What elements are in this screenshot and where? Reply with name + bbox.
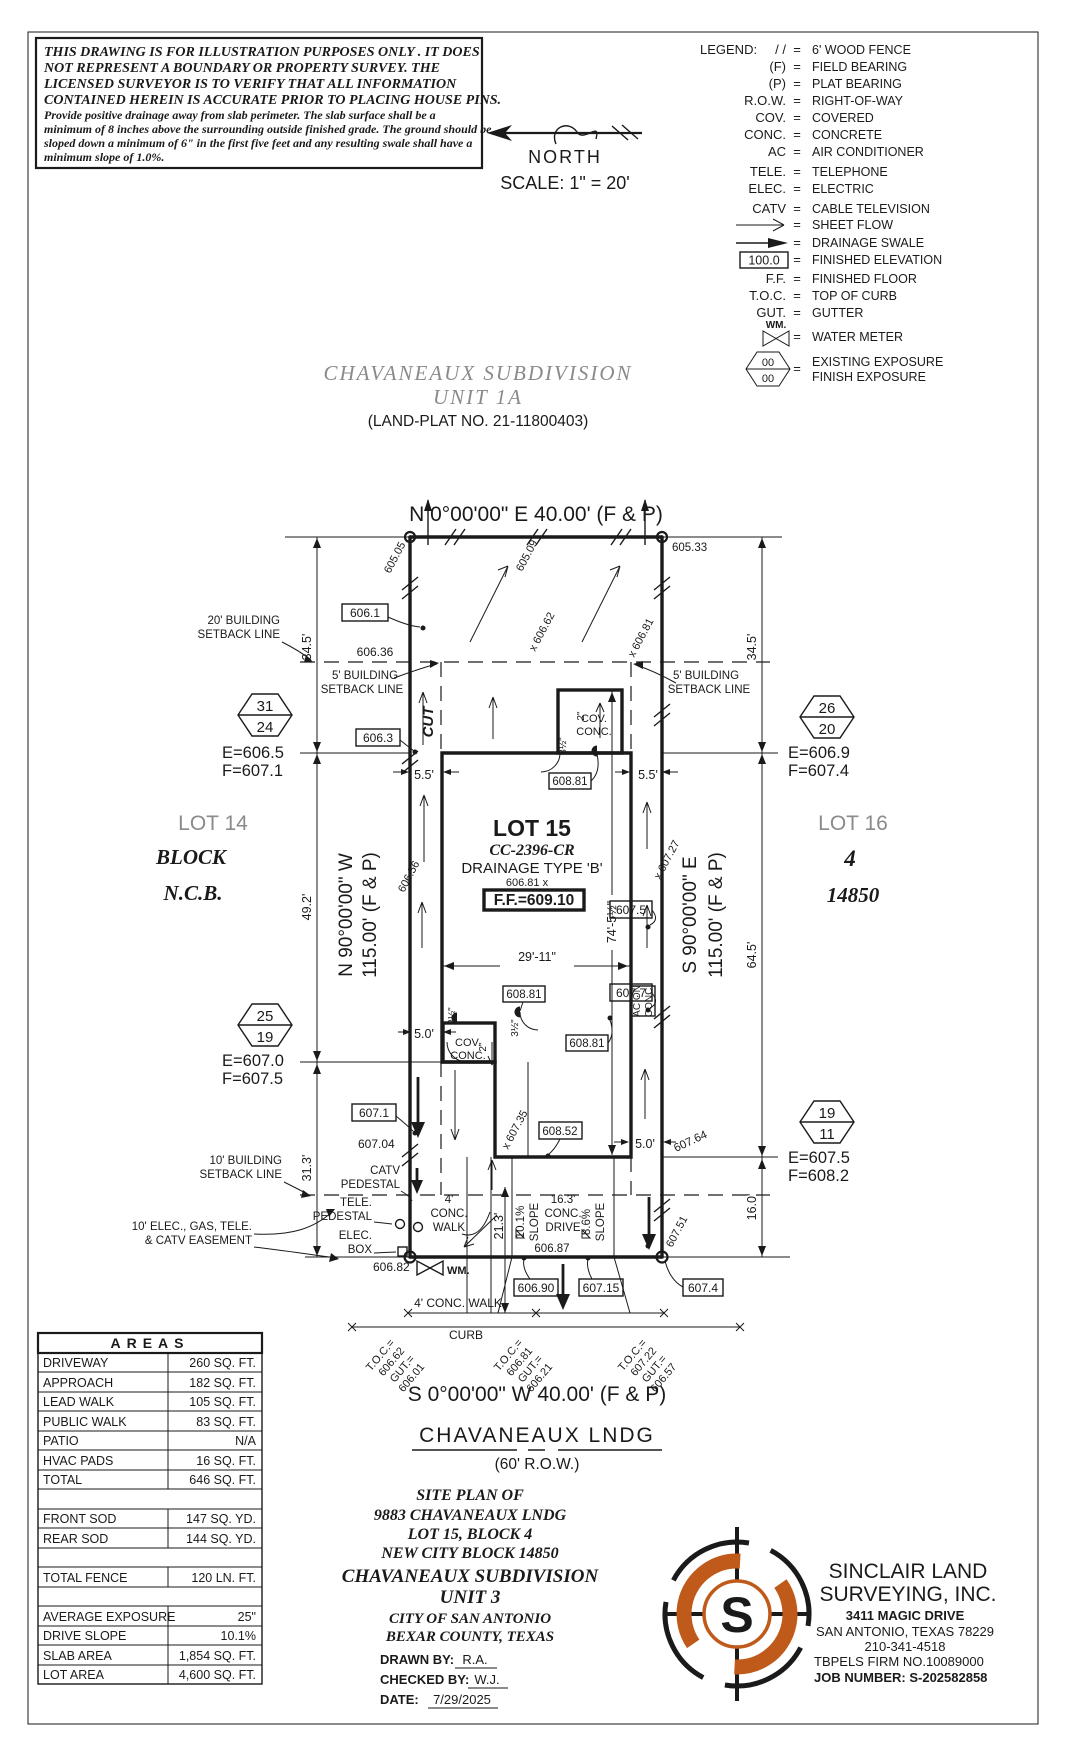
table-value: 120 LN. FT. xyxy=(191,1571,256,1585)
lead-walk-label: CONC. xyxy=(430,1208,467,1220)
legend-eq: = xyxy=(793,235,801,250)
water-meter-icon xyxy=(763,331,789,346)
table-label: HVAC PADS xyxy=(43,1454,113,1468)
titleblock-line: CITY OF SAN ANTONIO xyxy=(389,1611,551,1627)
table-label: FRONT SOD xyxy=(43,1512,116,1526)
legend-eq: = xyxy=(793,252,801,267)
legend-desc: GUTTER xyxy=(812,306,863,320)
legend-desc: 6' WOOD FENCE xyxy=(812,43,911,57)
marker-existing: 25 xyxy=(257,1008,274,1025)
marker-existing: 26 xyxy=(819,700,836,717)
table-value: 25" xyxy=(238,1610,256,1624)
disclaimer-line: NOT REPRESENT A BOUNDARY OR PROPERTY SUR… xyxy=(43,61,440,76)
disclaimer-line: CONTAINED HEREIN IS ACCURATE PRIOR TO PL… xyxy=(44,93,501,108)
lot-15-label: LOT 15 xyxy=(493,815,571,841)
conc-drive-label: DRIVE xyxy=(545,1222,580,1234)
disclaimer-note: THIS DRAWING IS FOR ILLUSTRATION PURPOSE… xyxy=(36,38,501,168)
easement-label: 10' ELEC., GAS, TELE. xyxy=(132,1221,252,1233)
table-label: PATIO xyxy=(43,1434,79,1448)
legend-desc: EXISTING EXPOSURE xyxy=(812,355,943,369)
dim-3half-front: 3½" xyxy=(558,737,569,755)
elev-607-1: 607.1 xyxy=(359,1106,389,1120)
marker-e: E=606.5 xyxy=(222,744,284,762)
drainage-swale-icon xyxy=(736,238,788,248)
setback-20-label: SETBACK LINE xyxy=(198,629,281,641)
legend-sym: R.O.W. xyxy=(744,93,786,108)
elev-606-1: 606.1 xyxy=(350,606,380,620)
legend-eq: = xyxy=(793,144,801,159)
legend: LEGEND: / / = 6' WOOD FENCE (F) = FIELD … xyxy=(700,42,943,386)
spot-607-64: 607.64 xyxy=(672,1129,709,1155)
exposure-existing: 00 xyxy=(762,357,774,369)
interior-dims xyxy=(442,690,630,1155)
legend-sym: CONC. xyxy=(744,127,786,142)
legend-desc: FIELD BEARING xyxy=(812,60,907,74)
tele-pedestal-label: PEDESTAL xyxy=(313,1211,373,1223)
elev-608-52: 608.52 xyxy=(542,1126,577,1138)
table-value: 260 SQ. FT. xyxy=(189,1356,256,1370)
areas-title: AREAS xyxy=(110,1335,189,1351)
legend-desc: CABLE TELEVISION xyxy=(812,202,930,216)
marker-finish: 24 xyxy=(257,719,274,736)
legend-title: LEGEND: xyxy=(700,42,757,57)
dim-21-3: 21.3' xyxy=(492,1213,506,1240)
house-outline xyxy=(442,690,655,1157)
drive-slope-left: 10.1% xyxy=(515,1206,527,1239)
table-label: DRIVE SLOPE xyxy=(43,1629,126,1643)
conc-drive-label: CONC. xyxy=(544,1208,581,1220)
table-label: TOTAL xyxy=(43,1473,82,1487)
legend-sym: (F) xyxy=(769,59,786,74)
north-arrow-icon xyxy=(487,125,642,144)
legend-eq: = xyxy=(793,164,801,179)
legend-eq: = xyxy=(793,329,801,344)
table-value: 147 SQ. YD. xyxy=(186,1512,256,1526)
elec-box-label: BOX xyxy=(348,1244,373,1256)
marker-existing: 31 xyxy=(257,698,274,715)
legend-sym: 100.0 xyxy=(748,254,779,268)
marker-f: F=607.4 xyxy=(788,762,849,780)
marker-f: F=607.1 xyxy=(222,762,283,780)
spot-607-35: x 607.35 xyxy=(500,1109,530,1152)
scale-label: SCALE: 1" = 20' xyxy=(500,173,629,193)
legend-eq: = xyxy=(793,76,801,91)
legend-desc: CONCRETE xyxy=(812,128,882,142)
checked-by-label: CHECKED BY: xyxy=(380,1672,469,1687)
setback-5-right-label: 5' BUILDING xyxy=(673,670,739,682)
drawn-by-label: DRAWN BY: xyxy=(380,1652,454,1667)
legend-eq: = xyxy=(793,42,801,57)
subdivision-unit: UNIT 1A xyxy=(433,385,523,409)
street-row: (60' R.O.W.) xyxy=(495,1456,580,1473)
bearing-east-1: S 90°00'00" E xyxy=(680,856,701,973)
legend-desc: FINISHED FLOOR xyxy=(812,272,917,286)
plat-number: (LAND-PLAT NO. 21-11800403) xyxy=(368,413,589,430)
legend-eq: = xyxy=(793,127,801,142)
table-label: AVERAGE EXPOSURE xyxy=(43,1610,175,1624)
dim-49-2: 49.2' xyxy=(300,894,314,921)
firm-address: 3411 MAGIC DRIVE xyxy=(846,1608,965,1623)
table-value: 105 SQ. FT. xyxy=(189,1395,256,1409)
conc-drive-label: 16.3' xyxy=(551,1194,576,1206)
table-label: DRIVEWAY xyxy=(43,1356,109,1370)
firm-info: SINCLAIR LAND SURVEYING, INC. 3411 MAGIC… xyxy=(814,1560,996,1685)
spot-elev-60681: 606.81 x xyxy=(506,877,549,889)
legend-sym: (P) xyxy=(769,76,786,91)
bearing-west-2: 115.00' (F & P) xyxy=(360,852,381,978)
legend-eq: = xyxy=(793,93,801,108)
dim-3half-rear1: 3½" xyxy=(447,1007,458,1025)
areas-table: AREAS DRIVEWAY 260 SQ. FT. APPROACH 182 … xyxy=(38,1333,262,1684)
date-value: 7/29/2025 xyxy=(433,1692,491,1707)
legend-desc: FINISH EXPOSURE xyxy=(812,370,926,384)
titleblock-line: UNIT 3 xyxy=(440,1587,501,1608)
drive-slope-right: SLOPE xyxy=(595,1202,607,1241)
table-value: N/A xyxy=(235,1434,257,1448)
firm-tbpels: TBPELS FIRM NO.10089000 xyxy=(814,1654,984,1669)
titleblock-line: LOT 15, BLOCK 4 xyxy=(407,1526,532,1543)
lot-14-label: LOT 14 xyxy=(178,812,248,835)
table-label: PUBLIC WALK xyxy=(43,1415,127,1429)
legend-desc: SHEET FLOW xyxy=(812,218,893,232)
table-value: 83 SQ. FT. xyxy=(196,1415,256,1429)
legend-desc: TELEPHONE xyxy=(812,165,888,179)
legend-sym: ELEC. xyxy=(748,181,786,196)
lot-16-label: LOT 16 xyxy=(818,812,888,835)
legend-eq: = xyxy=(793,288,801,303)
table-value: 16 SQ. FT. xyxy=(196,1454,256,1468)
spot-606-62: x 606.62 xyxy=(527,611,557,654)
easement-label: & CATV EASEMENT xyxy=(145,1235,252,1247)
legend-desc: RIGHT-OF-WAY xyxy=(812,94,904,108)
north-label: NORTH xyxy=(528,147,602,167)
marker-finish: 11 xyxy=(819,1126,835,1143)
table-value: 144 SQ. YD. xyxy=(186,1532,256,1546)
elev-608-81-c: 608.81 xyxy=(569,1038,604,1050)
spot-606-81: x 606.81 xyxy=(626,617,656,660)
table-value: 4,600 SQ. FT. xyxy=(179,1668,256,1682)
dim-31-3: 31.3' xyxy=(300,1155,314,1182)
marker-existing: 19 xyxy=(819,1105,836,1122)
legend-desc: TOP OF CURB xyxy=(812,289,897,303)
table-value: 646 SQ. FT. xyxy=(189,1473,256,1487)
marker-f: F=607.5 xyxy=(222,1070,283,1088)
elev-607-5: 607.5 xyxy=(616,903,646,917)
table-value: 1,854 SQ. FT. xyxy=(179,1649,256,1663)
table-label: LOT AREA xyxy=(43,1668,105,1682)
setback-5-left-label: 5' BUILDING xyxy=(332,670,398,682)
leader xyxy=(374,1252,396,1253)
block-label: BLOCK xyxy=(155,845,228,869)
titleblock-line: CHAVANEAUX SUBDIVISION xyxy=(342,1566,600,1587)
table-label: LEAD WALK xyxy=(43,1395,115,1409)
dim-2in-front: 2" xyxy=(576,711,587,721)
disclaimer-line: THIS DRAWING IS FOR ILLUSTRATION PURPOSE… xyxy=(44,45,480,60)
firm-address: SAN ANTONIO, TEXAS 78229 xyxy=(816,1624,994,1639)
spot-607-04: 607.04 xyxy=(358,1137,395,1151)
legend-eq: = xyxy=(793,305,801,320)
table-value: 182 SQ. FT. xyxy=(189,1376,256,1390)
cov-conc-front: CONC. xyxy=(576,726,611,738)
legend-sym: F.F. xyxy=(766,271,786,286)
titleblock-line: SITE PLAN OF xyxy=(416,1487,524,1504)
setback-5-left-label: SETBACK LINE xyxy=(321,684,404,696)
setback-10-label: SETBACK LINE xyxy=(200,1169,283,1181)
drawn-by-value: R.A. xyxy=(462,1652,487,1667)
site-plan-sheet: THIS DRAWING IS FOR ILLUSTRATION PURPOSE… xyxy=(0,0,1066,1754)
table-label: TOTAL FENCE xyxy=(43,1571,128,1585)
legend-sym: WM. xyxy=(766,320,787,331)
legend-sym: AC xyxy=(768,144,786,159)
ncb-number: 14850 xyxy=(827,883,880,907)
lead-walk-label: 4' xyxy=(445,1194,454,1206)
firm-name: SINCLAIR LAND xyxy=(829,1560,988,1583)
legend-eq: = xyxy=(793,217,801,232)
sinclair-logo-icon: S xyxy=(640,1517,835,1712)
dim-29-11: 29'-11" xyxy=(518,950,556,964)
catv-pedestal-label: PEDESTAL xyxy=(341,1179,401,1191)
setback-5-right-label: SETBACK LINE xyxy=(668,684,751,696)
drainage-type: DRAINAGE TYPE 'B' xyxy=(461,860,602,877)
lead-walk-label: WALK xyxy=(433,1222,465,1234)
elev-607-15: 607.15 xyxy=(583,1281,620,1295)
titleblock-line: NEW CITY BLOCK 14850 xyxy=(380,1545,558,1562)
legend-eq: = xyxy=(793,271,801,286)
legend-eq: = xyxy=(793,110,801,125)
dim-2in-rear: 2" xyxy=(478,1042,489,1052)
lot-cc-number: CC-2396-CR xyxy=(489,842,575,859)
titleblock-line: BEXAR COUNTY, TEXAS xyxy=(385,1629,554,1645)
elev-606-90: 606.90 xyxy=(518,1281,555,1295)
legend-desc: PLAT BEARING xyxy=(812,77,902,91)
marker-e: E=606.9 xyxy=(788,744,850,762)
legend-sym: GUT. xyxy=(756,305,786,320)
elev-607-7: 607.7 xyxy=(616,986,646,1000)
legend-desc: AIR CONDITIONER xyxy=(812,145,924,159)
firm-phone: 210-341-4518 xyxy=(865,1639,946,1654)
marker-e: E=607.5 xyxy=(788,1149,850,1167)
legend-eq: = xyxy=(793,59,801,74)
legend-sym: COV. xyxy=(755,110,786,125)
setback-20-label: 20' BUILDING xyxy=(208,615,281,627)
dim-3half-rear2: 3½" xyxy=(510,1019,521,1037)
bearing-east-2: 115.00' (F & P) xyxy=(706,852,727,978)
table-value: 10.1% xyxy=(221,1629,256,1643)
drive-slope-left: SLOPE xyxy=(529,1202,541,1241)
legend-sym: / / xyxy=(775,42,786,57)
water-meter-symbol xyxy=(417,1261,443,1275)
legend-eq: = xyxy=(793,201,801,216)
legend-desc: ELECTRIC xyxy=(812,182,874,196)
dim-64-5: 64.5' xyxy=(745,942,759,969)
spot-606-36: 606.36 xyxy=(357,645,394,659)
tele-pedestal-icon xyxy=(396,1220,405,1229)
catv-pedestal-label: CATV xyxy=(370,1165,400,1177)
exposure-finish: 00 xyxy=(762,373,774,385)
legend-eq: = xyxy=(793,361,801,376)
tele-pedestal-label: TELE. xyxy=(340,1197,372,1209)
legend-desc: COVERED xyxy=(812,111,874,125)
ncb-label: N.C.B. xyxy=(163,881,223,905)
marker-finish: 19 xyxy=(257,1029,274,1046)
street-name: CHAVANEAUX LNDG xyxy=(419,1424,655,1447)
bearing-north: N 0°00'00" E 40.00' (F & P) xyxy=(409,503,663,526)
block-number: 4 xyxy=(843,846,856,871)
disclaimer-line: minimum slope of 1.0%. xyxy=(44,150,164,164)
dim-5-5-left: 5.5' xyxy=(414,768,434,782)
elev-608-81-a: 608.81 xyxy=(552,776,587,788)
legend-desc: FINISHED ELEVATION xyxy=(812,253,942,267)
table-label: REAR SOD xyxy=(43,1532,108,1546)
dim-5-0-right: 5.0' xyxy=(635,1137,655,1151)
dim-5-5-right: 5.5' xyxy=(638,768,658,782)
table-label: APPROACH xyxy=(43,1376,113,1390)
table-label: SLAB AREA xyxy=(43,1649,112,1663)
wm-label: WM. xyxy=(447,1265,470,1277)
spot-605-09: 605.09 xyxy=(514,538,540,573)
spot-606-87: 606.87 xyxy=(534,1243,569,1255)
elev-607-4: 607.4 xyxy=(688,1281,718,1295)
checked-by-value: W.J. xyxy=(474,1672,499,1687)
legend-eq: = xyxy=(793,181,801,196)
public-walk-label: 4' CONC. WALK xyxy=(414,1296,502,1310)
firm-job-number: JOB NUMBER: S-202582858 xyxy=(814,1670,987,1685)
subdivision-title: CHAVANEAUX SUBDIVISION xyxy=(323,361,632,385)
spot-607-51: 607.51 xyxy=(664,1214,690,1249)
disclaimer-line: minimum of 8 inches above the surroundin… xyxy=(44,122,492,136)
spot-605-33: 605.33 xyxy=(672,542,707,554)
titleblock-line: 9883 CHAVANEAUX LNDG xyxy=(374,1507,567,1524)
curb-label: CURB xyxy=(449,1328,483,1342)
dim-34-5-right: 34.5' xyxy=(745,634,759,661)
bearing-west-1: N 90°00'00" W xyxy=(336,853,357,977)
legend-desc: WATER METER xyxy=(812,330,903,344)
sheet-flow-arrow-icon xyxy=(736,219,784,231)
legend-sym: T.O.C. xyxy=(749,288,786,303)
legend-sym: CATV xyxy=(752,201,786,216)
disclaimer-line: LICENSED SURVEYOR IS TO VERIFY THAT ALL … xyxy=(43,77,457,92)
catv-pedestal-icon xyxy=(414,1223,423,1232)
spot-606-56: 606.56 xyxy=(396,859,422,894)
setback-10-label: 10' BUILDING xyxy=(210,1155,283,1167)
elec-box-label: ELEC. xyxy=(339,1230,372,1242)
date-label: DATE: xyxy=(380,1692,419,1707)
legend-sym: TELE. xyxy=(750,164,786,179)
marker-finish: 20 xyxy=(819,721,836,738)
leader xyxy=(374,1222,392,1224)
legend-desc: DRAINAGE SWALE xyxy=(812,236,924,250)
logo-letter: S xyxy=(720,1587,753,1643)
elev-608-81-b: 608.81 xyxy=(506,989,541,1001)
title-block: SITE PLAN OF 9883 CHAVANEAUX LNDG LOT 15… xyxy=(342,1487,600,1708)
firm-name: SURVEYING, INC. xyxy=(820,1583,997,1606)
spot-605-05: 605.05 xyxy=(382,540,408,575)
elev-606-3: 606.3 xyxy=(363,731,393,745)
dim-5-0-left: 5.0' xyxy=(414,1027,434,1041)
marker-f: F=608.2 xyxy=(788,1167,849,1185)
dim-16-0: 16.0' xyxy=(745,1194,759,1221)
marker-e: E=607.0 xyxy=(222,1052,284,1070)
disclaimer-line: sloped down a minimum of 6" in the first… xyxy=(43,136,472,150)
spot-607-27: x 607.27 xyxy=(652,839,682,882)
spot-606-82: 606.82 xyxy=(373,1260,410,1274)
disclaimer-line: Provide positive drainage away from slab… xyxy=(44,108,436,122)
finished-floor: F.F.=609.10 xyxy=(494,892,575,909)
